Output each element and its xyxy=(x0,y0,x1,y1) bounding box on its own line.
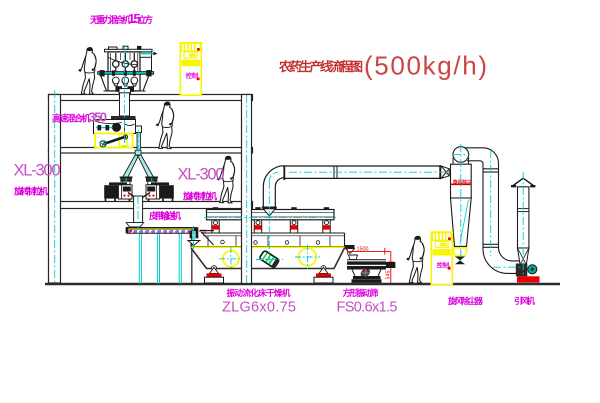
svg-text:皮带输送机: 皮带输送机 xyxy=(148,210,181,221)
svg-text:FS0.6x1.5: FS0.6x1.5 xyxy=(337,300,398,316)
svg-text:农药生产线流程图: 农药生产线流程图 xyxy=(278,59,363,74)
svg-text:XL-300: XL-300 xyxy=(178,166,225,184)
svg-text:振动流化床干燥机: 振动流化床干燥机 xyxy=(227,287,291,298)
svg-text:(500kg/h): (500kg/h) xyxy=(364,51,487,81)
svg-text:旋转制粒机: 旋转制粒机 xyxy=(13,186,48,197)
svg-text:545: 545 xyxy=(385,271,391,280)
svg-text:方形振动筛: 方形振动筛 xyxy=(343,287,379,298)
svg-text:旋风除尘器: 旋风除尘器 xyxy=(447,295,483,306)
svg-text:ZLG6x0.75: ZLG6x0.75 xyxy=(222,300,296,316)
svg-text:旋风除尘: 旋风除尘 xyxy=(452,179,472,186)
svg-text:1500: 1500 xyxy=(357,247,369,253)
svg-text:XL-300: XL-300 xyxy=(14,162,61,180)
svg-text:引风机: 引风机 xyxy=(514,295,535,306)
svg-text:旋转制粒机: 旋转制粒机 xyxy=(182,191,217,202)
